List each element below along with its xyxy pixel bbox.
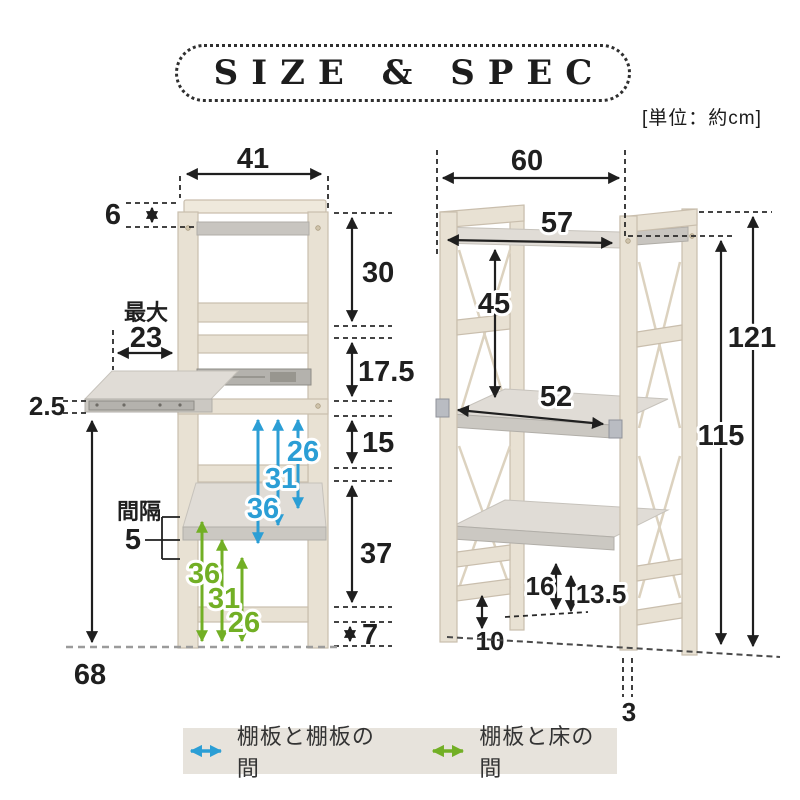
- side-lower-section-label: 37: [360, 538, 392, 570]
- front-back-right-post: [682, 209, 697, 655]
- slide-rail-cap: [270, 372, 296, 382]
- dim-side-pullout-height: 68: [74, 421, 106, 691]
- legend-bar: 棚板と棚板の間 棚板と床の間: [183, 728, 617, 774]
- front-total-width-label: 60: [511, 145, 543, 177]
- side-max-extension-label: 23: [130, 322, 162, 354]
- front-top-shelf: [441, 227, 620, 248]
- dim-side-board-thickness: 2.5: [29, 391, 87, 421]
- side-rail-1: [198, 303, 308, 322]
- side-slide-section-label: 17.5: [358, 356, 414, 388]
- dim-side-interval: 間隔 5: [117, 499, 180, 559]
- dim-side-lower-section: 37: [334, 481, 392, 607]
- legend-shelf-to-shelf: 棚板と棚板の間: [183, 719, 397, 783]
- dim-front-clearance-10: 10: [476, 596, 505, 656]
- side-top-back-bar: [197, 222, 309, 235]
- screw: [316, 404, 321, 409]
- spec-diagram: 41 6 30 最大 23 2.5 17.5: [0, 0, 800, 800]
- dim-side-mid-section: 15: [334, 416, 394, 468]
- floor-gap-26-label: 26: [228, 607, 260, 639]
- blue-double-arrow-icon: [183, 743, 229, 759]
- legend-shelf-to-shelf-label: 棚板と棚板の間: [237, 719, 398, 783]
- screw: [626, 239, 631, 244]
- dim-side-bottom-clearance: 7: [334, 619, 392, 651]
- screw: [178, 403, 181, 406]
- front-top-to-mid-label: 45: [478, 288, 510, 320]
- dim-side-total-width: 41: [180, 143, 328, 208]
- front-left-post: [440, 212, 457, 642]
- front-adjuster-label: 3: [622, 697, 636, 727]
- side-bottom-clearance-label: 7: [362, 619, 378, 651]
- size-spec-page: SIZE & SPEC [単位：約cm]: [0, 0, 800, 800]
- legend-shelf-to-floor: 棚板と床の間: [425, 719, 617, 783]
- front-clearance-16-label: 16: [526, 571, 555, 601]
- front-mid-shelf-width-label: 52: [540, 381, 572, 413]
- dim-side-top-section: 30: [334, 213, 394, 326]
- pullout-shelf-surface: [85, 371, 238, 399]
- interval-label: 間隔: [117, 499, 161, 524]
- shelf-gap-36-label: 36: [247, 493, 279, 525]
- side-pullout-height-label: 68: [74, 659, 106, 691]
- dim-side-slide-section: 17.5: [334, 338, 414, 401]
- side-back-post: [308, 212, 328, 648]
- front-view-unit: [436, 205, 697, 655]
- front-clearance-13-5-label: 13.5: [576, 579, 627, 609]
- front-top-shelf-width-label: 57: [541, 207, 573, 239]
- dim-front-clearance-16: 16: [526, 564, 556, 609]
- legend-shelf-to-floor-label: 棚板と床の間: [479, 719, 617, 783]
- front-top-shelf-height-label: 115: [698, 420, 745, 452]
- front-total-height-label: 121: [728, 322, 776, 354]
- screw: [95, 403, 98, 406]
- front-left-bottom-rail: [457, 579, 510, 601]
- front-right-bottom-rail: [637, 603, 682, 625]
- shelf-clip-right: [609, 420, 622, 438]
- pullout-slide-strip: [89, 401, 194, 410]
- dim-side-max-extension: 最大 23: [113, 300, 172, 370]
- dim-front-adjuster: 3: [622, 658, 636, 727]
- shelf-gap-31-label: 31: [265, 463, 297, 495]
- side-mid-section-label: 15: [362, 427, 394, 459]
- screw: [316, 226, 321, 231]
- side-board-thickness-label: 2.5: [29, 391, 65, 421]
- side-middle-shelf-edge: [183, 527, 326, 540]
- screw: [122, 403, 125, 406]
- side-rail-2: [198, 335, 308, 353]
- front-right-rail: [637, 325, 682, 347]
- green-double-arrow-icon: [425, 743, 471, 759]
- side-top-board: [184, 200, 326, 213]
- shelf-clip-left: [436, 399, 449, 417]
- side-top-thickness-label: 6: [105, 199, 121, 231]
- side-total-width-label: 41: [237, 143, 269, 175]
- side-top-section-label: 30: [362, 257, 394, 289]
- side-interval-value-label: 5: [125, 524, 141, 556]
- screw: [158, 403, 161, 406]
